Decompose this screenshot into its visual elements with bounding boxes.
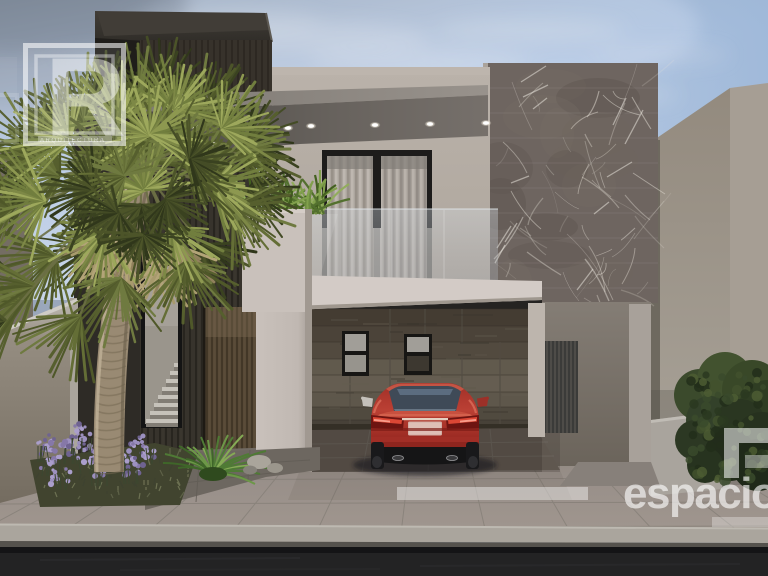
svg-text:espacio: espacio [623, 469, 768, 518]
svg-text:ARQUITECTURA: ARQUITECTURA [40, 138, 105, 144]
